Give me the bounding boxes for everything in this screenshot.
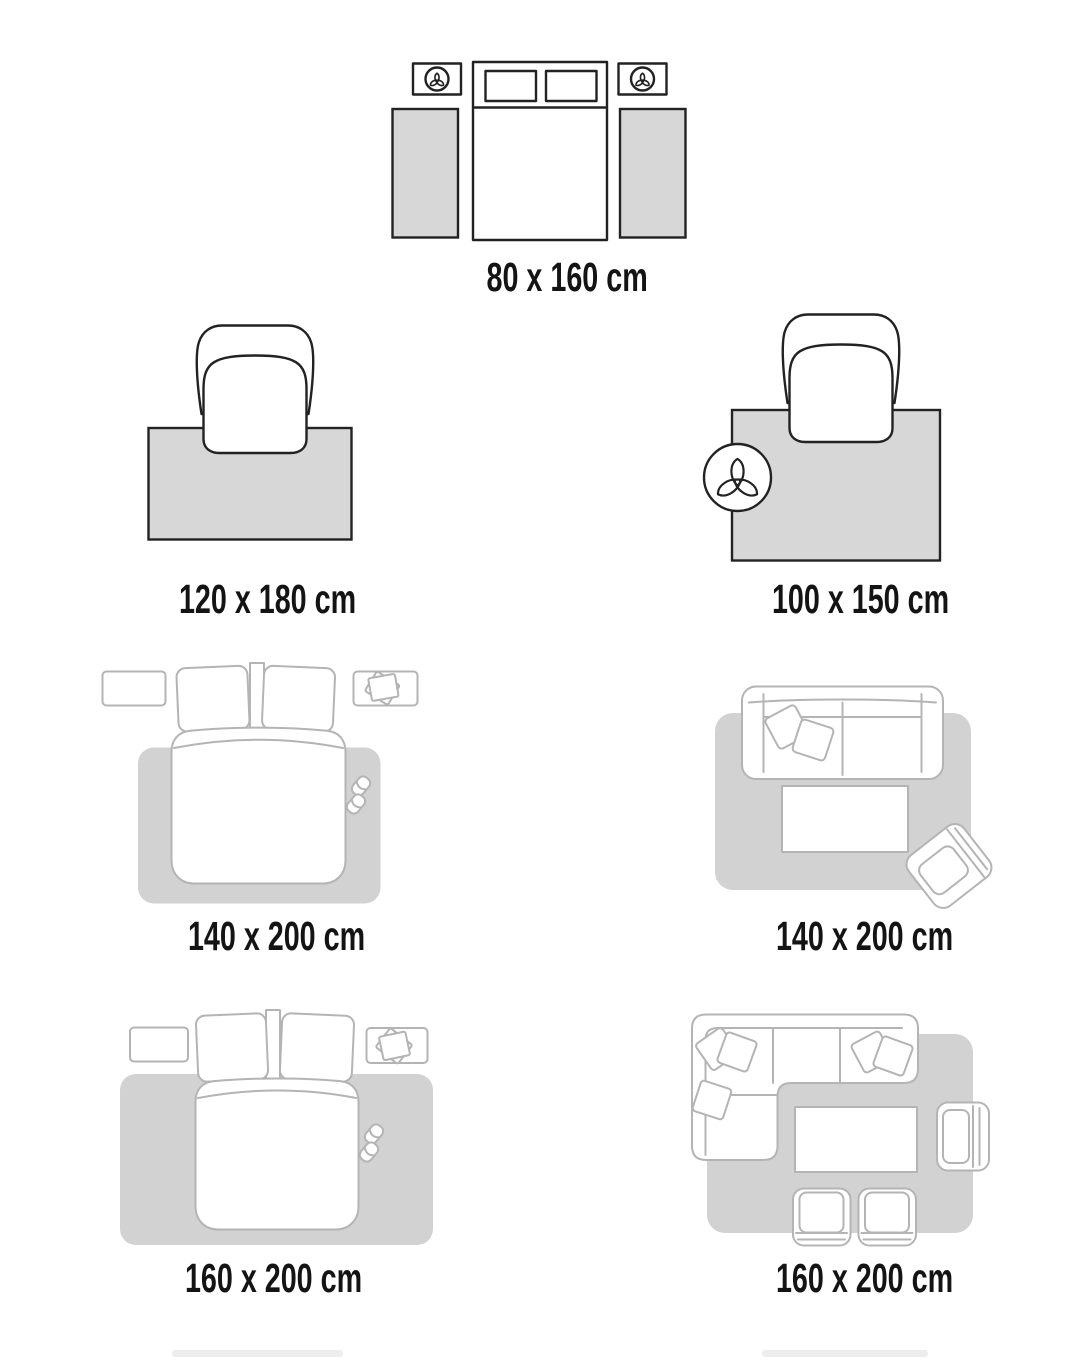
pillow	[262, 665, 336, 732]
pillow	[546, 71, 597, 101]
bed	[196, 1010, 359, 1230]
size-label-100x150: 100 x 150 cm	[681, 578, 1041, 620]
scene-chair-rug-120	[140, 315, 365, 545]
size-label-80x160: 80 x 160 cm	[387, 256, 747, 298]
nightstand-right	[354, 671, 418, 705]
scene-bed-rug-140	[95, 655, 425, 913]
cutoff-label-left	[172, 1350, 343, 1357]
armchair	[783, 315, 899, 443]
scene-sofa-rug-160	[670, 1003, 1000, 1261]
bed	[473, 62, 607, 240]
coffee-table	[782, 786, 908, 852]
scene-sofa-rug-140	[700, 658, 1000, 910]
sofa	[742, 687, 943, 780]
armchair	[937, 1103, 989, 1171]
nightstand-left	[103, 672, 166, 706]
cutoff-label-right	[762, 1350, 928, 1357]
chair	[793, 1189, 851, 1246]
duvet	[172, 728, 346, 884]
size-label-140x200-sofa: 140 x 200 cm	[685, 915, 1045, 957]
size-label-160x200-sofa: 160 x 200 cm	[685, 1257, 1045, 1299]
pillow	[280, 1013, 355, 1082]
scene-bed-runners	[380, 48, 690, 245]
nightstand-right	[619, 64, 667, 95]
chair	[859, 1189, 917, 1246]
nightstand-left	[413, 64, 461, 95]
size-label-120x180: 120 x 180 cm	[88, 578, 448, 620]
scene-chair-rug-100	[700, 303, 952, 565]
pillow	[196, 1013, 269, 1082]
headboard	[250, 663, 264, 736]
runner-rug-left	[393, 109, 459, 238]
rug-size-guide: 80 x 160 cm 120 x 180 cm 100 x 150 cm	[0, 0, 1080, 1360]
scene-bed-rug-160	[95, 1008, 445, 1270]
coffee-table	[795, 1107, 917, 1172]
size-label-160x200-bed: 160 x 200 cm	[94, 1257, 454, 1299]
runner-rug-right	[620, 109, 686, 238]
duvet	[196, 1078, 359, 1229]
pillow	[176, 665, 250, 732]
potted-plant	[704, 444, 771, 511]
pillow	[486, 71, 537, 101]
nightstand-right	[367, 1028, 428, 1064]
size-label-140x200-bed: 140 x 200 cm	[97, 915, 457, 957]
nightstand-left	[130, 1028, 188, 1062]
bed	[172, 663, 346, 884]
armchair	[197, 326, 313, 454]
